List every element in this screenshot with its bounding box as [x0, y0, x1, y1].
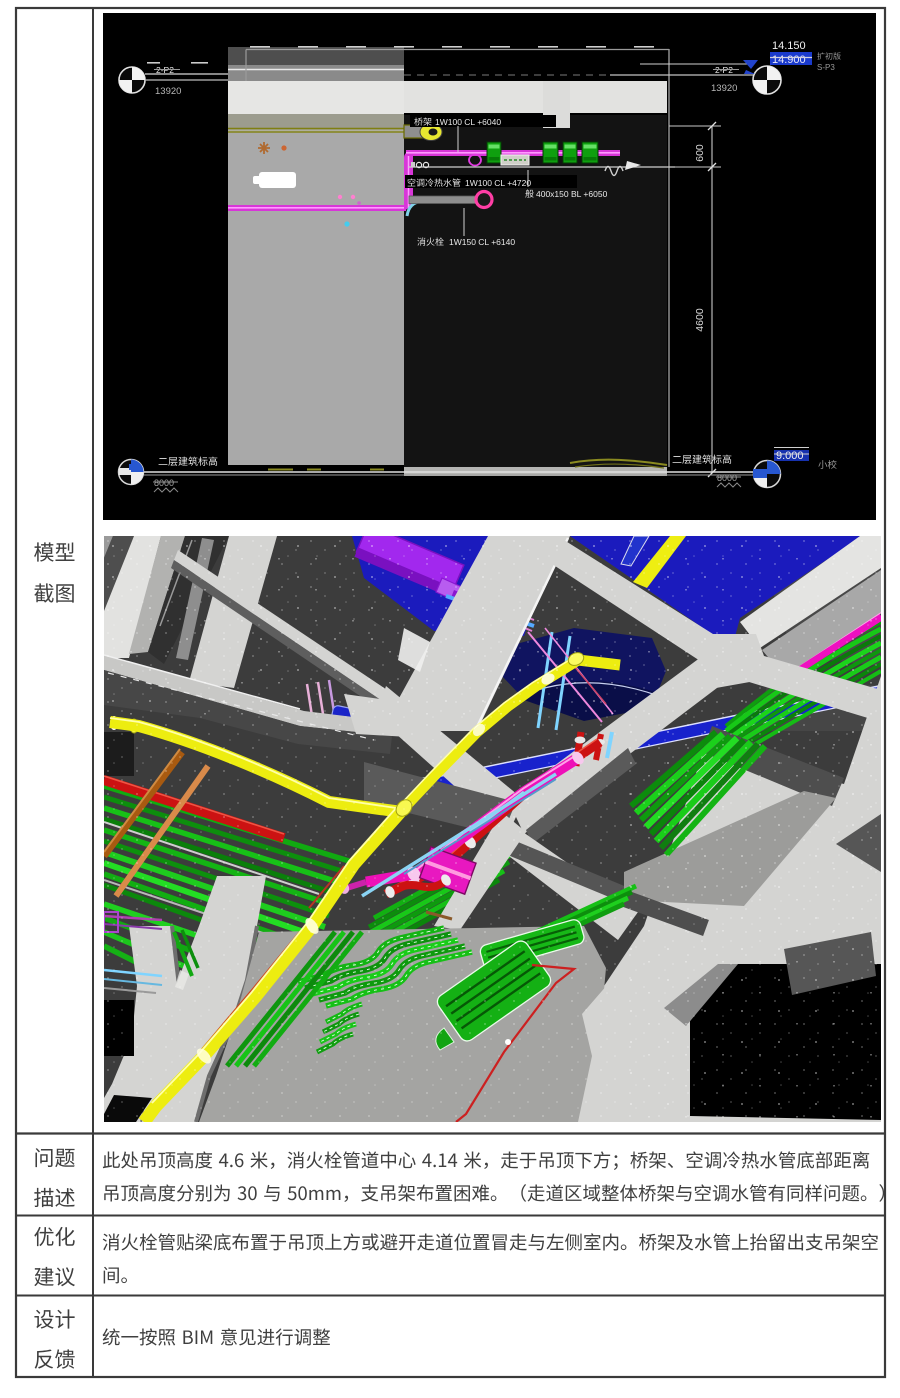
svg-text:8000: 8000	[717, 473, 737, 483]
svg-text:1W100 CL +6040: 1W100 CL +6040	[435, 117, 501, 127]
svg-text:600: 600	[694, 144, 706, 162]
svg-text:1W150 CL +6140: 1W150 CL +6140	[449, 237, 515, 247]
svg-text:S-P3: S-P3	[817, 63, 835, 72]
svg-text:8000: 8000	[154, 478, 174, 488]
svg-text:14.150: 14.150	[772, 40, 806, 52]
svg-text:1W100 CL +4720: 1W100 CL +4720	[465, 178, 531, 188]
svg-text:4600: 4600	[694, 308, 706, 332]
svg-text:14.900: 14.900	[772, 54, 806, 66]
svg-text:13920: 13920	[155, 86, 181, 97]
svg-text:9.000: 9.000	[776, 450, 804, 462]
svg-text:400x150 BL +6050: 400x150 BL +6050	[536, 189, 608, 199]
svg-text:13920: 13920	[711, 83, 737, 94]
